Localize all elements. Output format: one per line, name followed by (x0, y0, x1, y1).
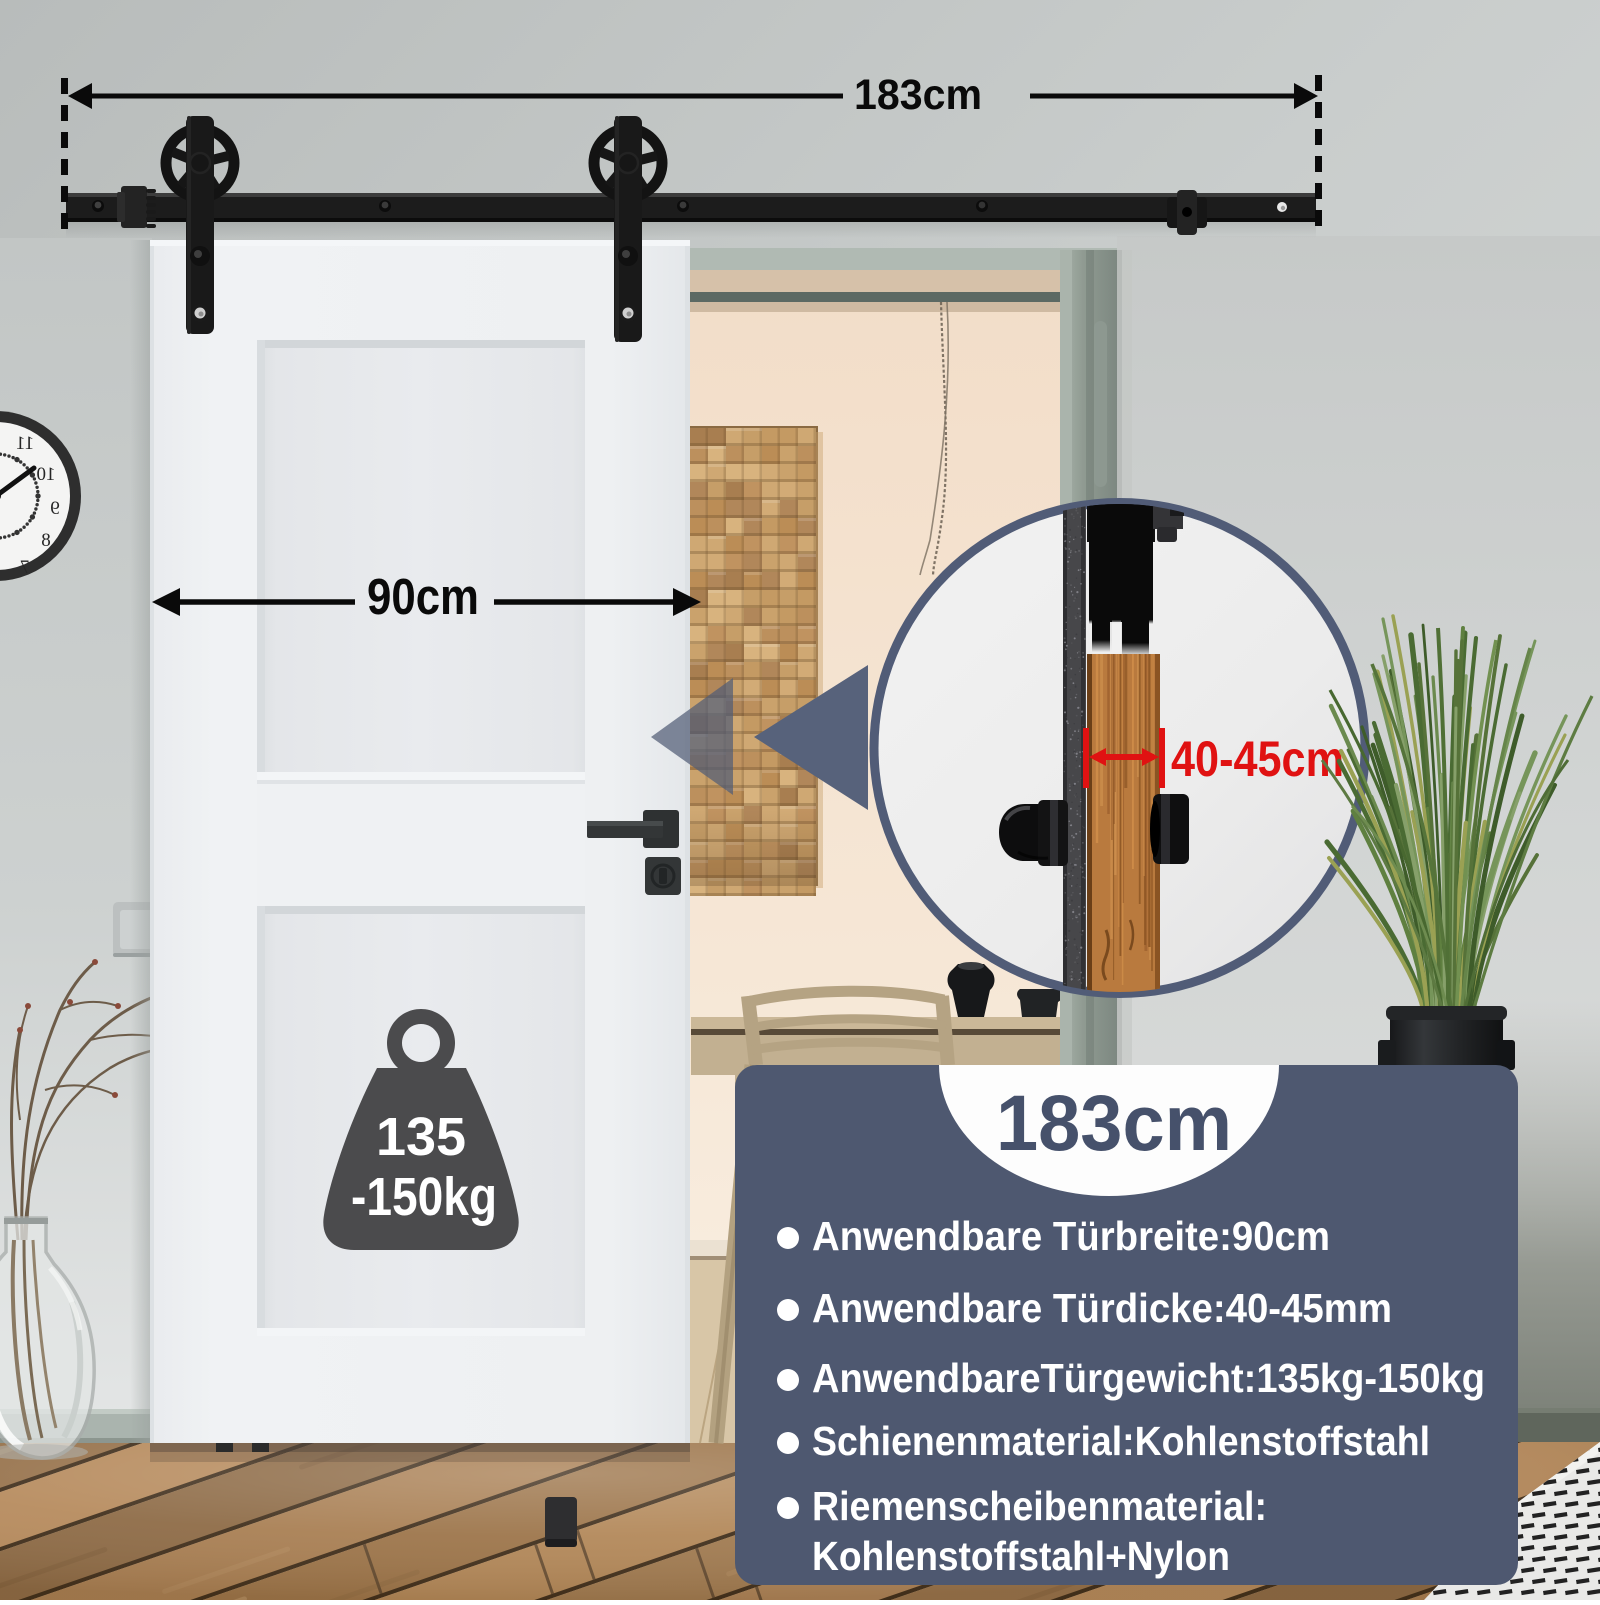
svg-text:10: 10 (37, 464, 56, 485)
svg-text:7: 7 (20, 557, 30, 578)
svg-text:Kohlenstoffstahl+Nylon: Kohlenstoffstahl+Nylon (812, 1533, 1230, 1579)
svg-text:11: 11 (16, 433, 34, 454)
svg-text:Anwendbare Türbreite:90cm: Anwendbare Türbreite:90cm (812, 1213, 1330, 1259)
svg-text:AnwendbareTürgewicht:135kg-150: AnwendbareTürgewicht:135kg-150kg (812, 1355, 1485, 1401)
svg-text:8: 8 (41, 530, 51, 551)
svg-text:40-45cm: 40-45cm (1171, 731, 1344, 787)
svg-text:183cm: 183cm (854, 71, 982, 119)
svg-text:90cm: 90cm (367, 568, 479, 625)
svg-text:Anwendbare Türdicke:40-45mm: Anwendbare Türdicke:40-45mm (812, 1285, 1392, 1331)
svg-text:-150kg: -150kg (351, 1167, 497, 1227)
svg-text:135: 135 (376, 1107, 466, 1167)
svg-text:9: 9 (50, 498, 60, 519)
svg-text:183cm: 183cm (996, 1078, 1232, 1167)
svg-text:Riemenscheibenmaterial:: Riemenscheibenmaterial: (812, 1483, 1267, 1529)
svg-text:Schienenmaterial:Kohlenstoffst: Schienenmaterial:Kohlenstoffstahl (812, 1418, 1430, 1464)
